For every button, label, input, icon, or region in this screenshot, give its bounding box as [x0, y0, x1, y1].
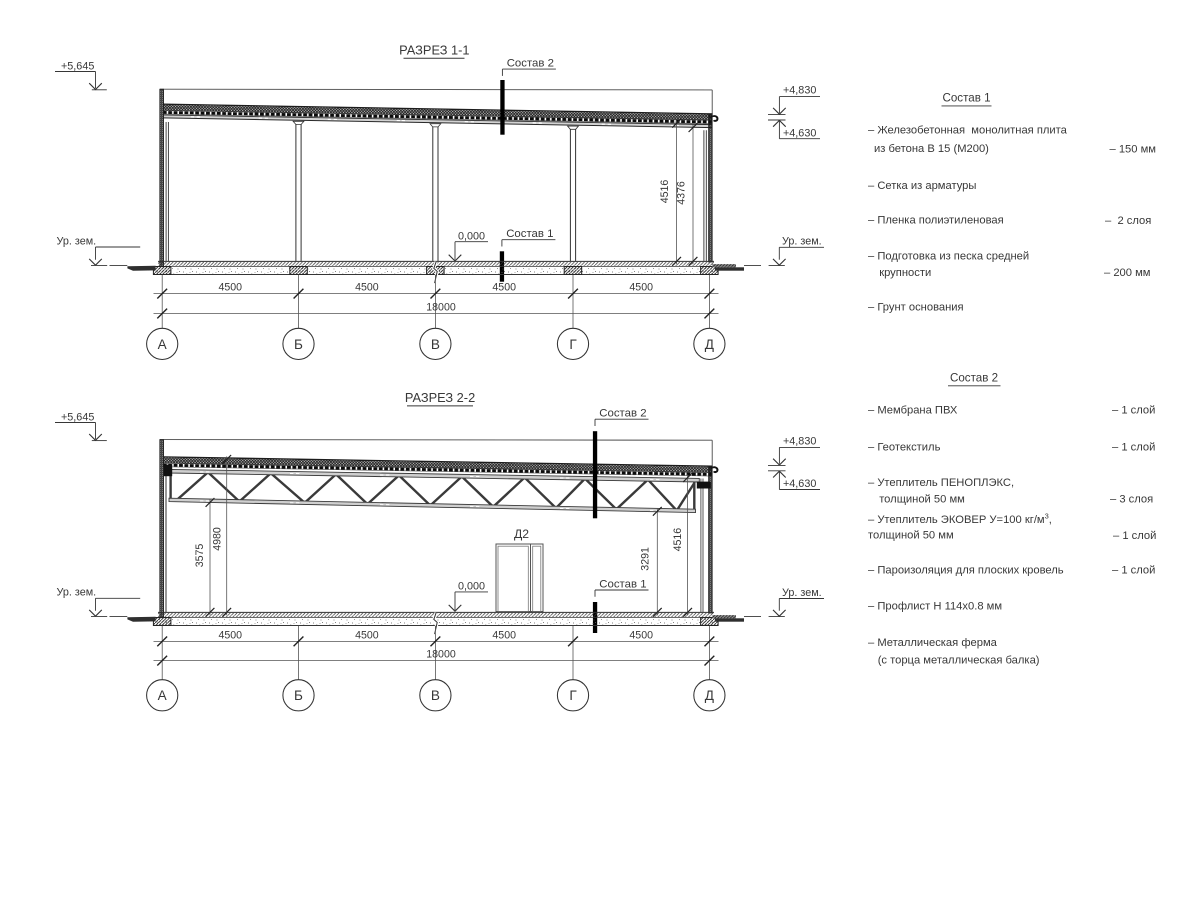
svg-text:3291: 3291 — [640, 547, 652, 571]
svg-text:Состав 1: Состав 1 — [506, 228, 553, 240]
svg-text:– Профлист Н 114х0.8 мм: – Профлист Н 114х0.8 мм — [868, 600, 1002, 612]
svg-text:Б: Б — [294, 688, 303, 703]
svg-text:0,000: 0,000 — [458, 581, 485, 593]
svg-text:– 1 слой: – 1 слой — [1113, 530, 1156, 542]
svg-text:Г: Г — [569, 337, 577, 352]
svg-text:РАЗРЕЗ 1-1: РАЗРЕЗ 1-1 — [399, 43, 469, 58]
svg-text:4500: 4500 — [219, 282, 243, 294]
svg-text:(с торца металлическая балка): (с торца металлическая балка) — [878, 655, 1040, 667]
svg-text:18000: 18000 — [426, 302, 456, 314]
svg-text:– 150 мм: – 150 мм — [1110, 143, 1157, 155]
svg-text:Г: Г — [569, 688, 577, 703]
svg-text:18000: 18000 — [426, 649, 456, 661]
svg-text:– Сетка из арматуры: – Сетка из арматуры — [868, 180, 976, 192]
svg-text:Ур. зем.: Ур. зем. — [57, 587, 97, 599]
svg-text:Д2: Д2 — [514, 527, 529, 541]
svg-text:+4,830: +4,830 — [783, 85, 816, 97]
svg-text:Б: Б — [294, 337, 303, 352]
svg-text:4516: 4516 — [659, 180, 671, 204]
svg-text:+4,830: +4,830 — [783, 435, 816, 447]
svg-text:4376: 4376 — [675, 181, 687, 205]
svg-text:Ур. зем.: Ур. зем. — [782, 236, 822, 248]
svg-text:3575: 3575 — [194, 544, 206, 568]
svg-text:В: В — [431, 688, 440, 703]
svg-text:– 1 слой: – 1 слой — [1112, 442, 1155, 454]
svg-text:Состав 2: Состав 2 — [950, 371, 998, 384]
svg-text:толщиной 50 мм: толщиной 50 мм — [868, 530, 954, 542]
svg-text:– Грунт основания: – Грунт основания — [868, 302, 964, 314]
svg-text:Состав 1: Состав 1 — [599, 578, 646, 590]
svg-text:– Пароизоляция для плоских кро: – Пароизоляция для плоских кровель — [868, 565, 1064, 577]
svg-text:– Утеплитель ЭКОВЕР У=100 кг/м: – Утеплитель ЭКОВЕР У=100 кг/м3, — [868, 511, 1052, 526]
svg-text:4516: 4516 — [672, 528, 684, 552]
svg-text:+5,645: +5,645 — [61, 411, 94, 423]
svg-text:Состав 2: Состав 2 — [507, 57, 554, 69]
svg-text:– 200 мм: – 200 мм — [1104, 267, 1151, 279]
svg-text:толщиной 50 мм: толщиной 50 мм — [879, 494, 965, 506]
svg-text:крупности: крупности — [879, 267, 931, 279]
svg-text:4500: 4500 — [629, 629, 653, 641]
svg-text:– Подготовка из песка средней: – Подготовка из песка средней — [868, 251, 1029, 263]
svg-text:4500: 4500 — [492, 629, 516, 641]
svg-text:РАЗРЕЗ 2-2: РАЗРЕЗ 2-2 — [405, 390, 475, 405]
svg-text:4980: 4980 — [211, 527, 223, 551]
svg-text:+5,645: +5,645 — [61, 60, 94, 72]
svg-text:– Металлическая ферма: – Металлическая ферма — [868, 637, 998, 649]
svg-text:4500: 4500 — [355, 629, 379, 641]
svg-text:– Мембрана ПВХ: – Мембрана ПВХ — [868, 405, 958, 417]
svg-text:4500: 4500 — [629, 282, 653, 294]
svg-text:Ур. зем.: Ур. зем. — [782, 587, 822, 599]
svg-text:0,000: 0,000 — [458, 231, 485, 243]
svg-text:– Геотекстиль: – Геотекстиль — [868, 442, 941, 454]
svg-text:– 3 слоя: – 3 слоя — [1110, 494, 1153, 506]
svg-text:А: А — [158, 688, 168, 703]
svg-text:– Утеплитель ПЕНОПЛЭКС,: – Утеплитель ПЕНОПЛЭКС, — [868, 477, 1014, 489]
svg-text:4500: 4500 — [355, 282, 379, 294]
svg-text:4500: 4500 — [492, 282, 516, 294]
svg-text:Д: Д — [705, 337, 714, 352]
svg-text:+4,630: +4,630 — [783, 127, 816, 139]
svg-text:– Пленка полиэтиленовая: – Пленка полиэтиленовая — [868, 215, 1004, 227]
svg-text:из бетона В 15 (М200): из бетона В 15 (М200) — [874, 143, 989, 155]
svg-text:Ур. зем.: Ур. зем. — [57, 235, 97, 247]
svg-text:Д: Д — [705, 688, 714, 703]
svg-text:Состав 1: Состав 1 — [942, 92, 990, 105]
svg-text:– Железобетонная монолитная п: – Железобетонная монолитная плита — [868, 125, 1068, 137]
svg-text:– 2 слоя: – 2 слоя — [1105, 215, 1151, 227]
svg-text:– 1 слой: – 1 слой — [1112, 564, 1155, 576]
svg-text:А: А — [158, 337, 168, 352]
svg-text:4500: 4500 — [219, 629, 243, 641]
svg-text:В: В — [431, 337, 440, 352]
svg-text:Состав 2: Состав 2 — [599, 408, 646, 420]
svg-text:+4,630: +4,630 — [783, 478, 816, 490]
svg-text:– 1 слой: – 1 слой — [1112, 405, 1155, 417]
